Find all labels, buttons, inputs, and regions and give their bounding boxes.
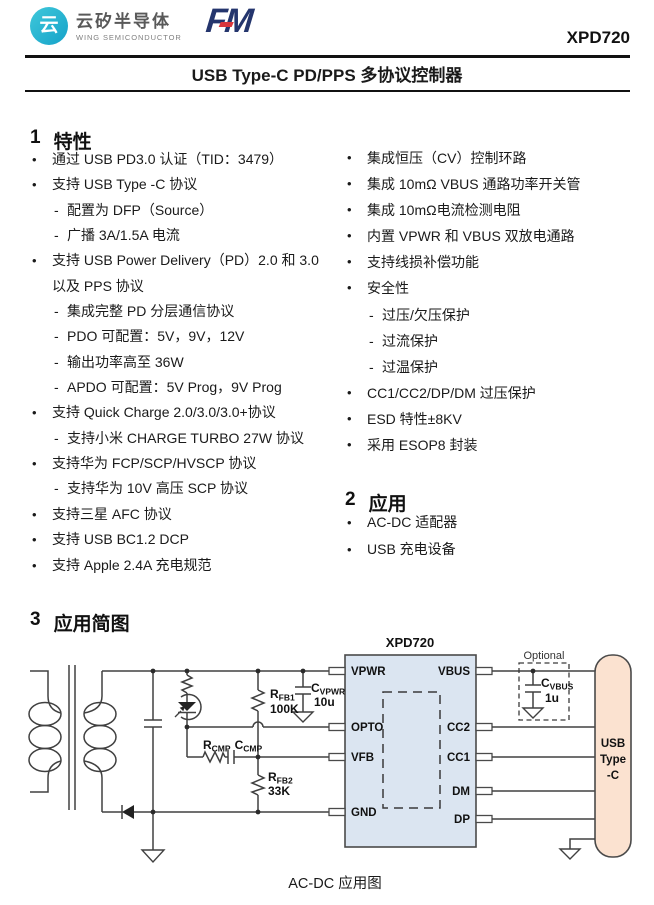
header-rule-top <box>25 55 630 58</box>
application-item: • AC-DC 适配器 <box>345 509 650 536</box>
bullet-marker: - <box>54 299 67 324</box>
pin-label-dp: DP <box>454 814 470 826</box>
feature-item: • 支持 Quick Charge 2.0/3.0/3.0+协议 <box>30 400 340 425</box>
features-left-list: • 通过 USB PD3.0 认证（TID：3479） • 支持 USB Typ… <box>30 147 340 578</box>
cvpwr-value: 10u <box>314 695 335 709</box>
pin-cc1 <box>476 754 492 761</box>
feature-text: 过流保护 <box>382 328 438 354</box>
rectifier-diode <box>122 805 134 819</box>
bullet-marker: • <box>347 380 367 406</box>
schematic-caption: AC-DC 应用图 <box>30 872 640 893</box>
usb-label-line2: Type <box>600 754 626 766</box>
feature-item: • 支持 USB Type -C 协议 <box>30 172 340 197</box>
bullet-marker: - <box>369 302 382 328</box>
feature-text: 集成恒压（CV）控制环路 <box>367 145 526 171</box>
feature-item: • 安全性 <box>345 275 650 301</box>
feature-text: 支持三星 AFC 协议 <box>52 502 172 527</box>
feature-item: - 配置为 DFP（Source） <box>30 198 340 223</box>
bullet-marker: • <box>32 451 52 476</box>
feature-item: - 过温保护 <box>345 354 650 380</box>
pin-gnd <box>329 809 345 816</box>
fm-logo: FM <box>204 2 253 42</box>
pin-vpwr <box>329 668 345 675</box>
ic-name: XPD720 <box>386 635 434 650</box>
feature-item: 以及 PPS 协议 <box>30 274 340 299</box>
output-capacitor <box>144 671 162 812</box>
bullet-marker: • <box>347 509 367 536</box>
brand-name-en: WING SEMICONDUCTOR <box>76 33 182 42</box>
feature-item: • 支持 Apple 2.4A 充电规范 <box>30 553 340 578</box>
pin-label-gnd: GND <box>351 807 377 819</box>
feature-item: - APDO 可配置：5V Prog，9V Prog <box>30 375 340 400</box>
bullet-marker: • <box>347 171 367 197</box>
bullet-marker: • <box>32 527 52 552</box>
bullet-marker: • <box>347 197 367 223</box>
feature-item: • 通过 USB PD3.0 认证（TID：3479） <box>30 147 340 172</box>
pin-vbus <box>476 668 492 675</box>
fm-logo-letter-m: M <box>223 2 253 40</box>
header: 云 云矽半导体 WING SEMICONDUCTOR FM XPD720 <box>0 0 654 55</box>
pin-label-vfb: VFB <box>351 752 374 764</box>
feature-text: 内置 VPWR 和 VBUS 双放电通路 <box>367 223 575 249</box>
feature-text: 支持 USB Type -C 协议 <box>52 172 197 197</box>
wing-logo-icon: 云 <box>30 7 68 45</box>
application-schematic: XPD720 VPWR OPTO VFB GND VBUS CC2 CC1 DM… <box>25 620 635 875</box>
fm-logo-red-dash-icon <box>219 22 234 27</box>
applications-list: • AC-DC 适配器 • USB 充电设备 <box>345 509 650 563</box>
bullet-marker: - <box>54 426 67 451</box>
bullet-marker: • <box>347 275 367 301</box>
optocoupler <box>175 671 201 727</box>
bullet-marker: - <box>54 324 67 349</box>
bullet-marker: • <box>347 432 367 458</box>
feature-item: - PDO 可配置：5V，9V，12V <box>30 324 340 349</box>
bullet-marker: • <box>347 223 367 249</box>
rfb1-label: RFB1 <box>270 687 295 703</box>
pin-cc2 <box>476 724 492 731</box>
feature-item: - 输出功率高至 36W <box>30 350 340 375</box>
application-item: • USB 充电设备 <box>345 536 650 563</box>
feature-text: 支持 Apple 2.4A 充电规范 <box>52 553 212 578</box>
feature-item: • 支持 USB BC1.2 DCP <box>30 527 340 552</box>
optional-label: Optional <box>524 650 565 662</box>
ic-xpd720: XPD720 VPWR OPTO VFB GND VBUS CC2 CC1 DM… <box>329 635 492 847</box>
pin-label-vbus: VBUS <box>438 666 470 678</box>
feature-item: - 集成完整 PD 分层通信协议 <box>30 299 340 324</box>
header-rule-bottom <box>25 90 630 92</box>
feature-text: 集成 10mΩ VBUS 通路功率开关管 <box>367 171 581 197</box>
pin-dp <box>476 816 492 823</box>
feature-text: 支持线损补偿功能 <box>367 249 479 275</box>
bullet-marker: • <box>32 553 52 578</box>
bullet-marker: • <box>32 400 52 425</box>
feature-item: • ESD 特性±8KV <box>345 406 650 432</box>
feature-text: 支持 USB Power Delivery（PD）2.0 和 3.0 <box>52 248 319 273</box>
feature-text: 支持华为 10V 高压 SCP 协议 <box>67 476 248 501</box>
wing-logo-glyph: 云 <box>39 15 58 36</box>
feature-text: 支持小米 CHARGE TURBO 27W 协议 <box>67 426 304 451</box>
cvbus-value: 1u <box>545 691 559 705</box>
feature-text: 通过 USB PD3.0 认证（TID：3479） <box>52 147 283 172</box>
feature-text: CC1/CC2/DP/DM 过压保护 <box>367 380 536 406</box>
feature-text: 输出功率高至 36W <box>67 350 184 375</box>
feature-text: 支持 Quick Charge 2.0/3.0/3.0+协议 <box>52 400 276 425</box>
feature-item: • 支持三星 AFC 协议 <box>30 502 340 527</box>
part-number: XPD720 <box>567 28 630 48</box>
connector-wires <box>492 671 595 819</box>
transformer <box>29 665 116 812</box>
feature-text: 支持 USB BC1.2 DCP <box>52 527 189 552</box>
features-right-list: • 集成恒压（CV）控制环路 • 集成 10mΩ VBUS 通路功率开关管 • … <box>345 145 650 458</box>
pin-label-opto: OPTO <box>351 722 383 734</box>
feature-item: • 支持华为 FCP/SCP/HVSCP 协议 <box>30 451 340 476</box>
bullet-marker: - <box>54 223 67 248</box>
feature-item: • 支持线损补偿功能 <box>345 249 650 275</box>
feature-item: - 过压/欠压保护 <box>345 302 650 328</box>
bullet-marker: - <box>54 350 67 375</box>
feature-item: - 广播 3A/1.5A 电流 <box>30 223 340 248</box>
feature-text: ESD 特性±8KV <box>367 406 462 432</box>
feature-text: 采用 ESOP8 封装 <box>367 432 477 458</box>
application-text: USB 充电设备 <box>367 536 456 563</box>
feature-item: • 集成恒压（CV）控制环路 <box>345 145 650 171</box>
rfb2-resistor <box>252 757 264 812</box>
feature-item: - 过流保护 <box>345 328 650 354</box>
transformer-core <box>69 665 75 810</box>
pin-label-vpwr: VPWR <box>351 666 386 678</box>
rfb1-value: 100K <box>270 702 299 716</box>
feature-text: PDO 可配置：5V，9V，12V <box>67 324 244 349</box>
wing-semiconductor-logo: 云 云矽半导体 WING SEMICONDUCTOR <box>30 7 182 45</box>
feature-item: • 内置 VPWR 和 VBUS 双放电通路 <box>345 223 650 249</box>
pin-label-cc1: CC1 <box>447 752 471 764</box>
bullet-marker: • <box>347 249 367 275</box>
feature-item: • 采用 ESOP8 封装 <box>345 432 650 458</box>
feature-item: - 支持华为 10V 高压 SCP 协议 <box>30 476 340 501</box>
feature-text: 配置为 DFP（Source） <box>67 198 213 223</box>
bullet-marker: • <box>32 147 52 172</box>
pin-label-dm: DM <box>452 786 470 798</box>
rfb2-value: 33K <box>268 784 290 798</box>
bullet-marker: • <box>32 248 52 273</box>
feature-text: 集成完整 PD 分层通信协议 <box>67 299 234 324</box>
feature-text: 广播 3A/1.5A 电流 <box>67 223 180 248</box>
feature-item: • 集成 10mΩ电流检测电阻 <box>345 197 650 223</box>
usb-label-line3: -C <box>607 770 619 782</box>
bullet-marker: - <box>54 198 67 223</box>
application-text: AC-DC 适配器 <box>367 509 457 536</box>
usb-label-line1: USB <box>601 738 625 750</box>
bullet-marker: • <box>32 502 52 527</box>
rcmp-ccmp-label: RCMPCCMP <box>203 738 262 754</box>
bullet-marker: • <box>347 536 367 563</box>
brand-block: 云矽半导体 WING SEMICONDUCTOR <box>76 7 182 42</box>
feature-item: • CC1/CC2/DP/DM 过压保护 <box>345 380 650 406</box>
feature-text: 安全性 <box>367 275 409 301</box>
brand-name-cn: 云矽半导体 <box>76 12 182 31</box>
feature-text: APDO 可配置：5V Prog，9V Prog <box>67 375 282 400</box>
feature-text: 集成 10mΩ电流检测电阻 <box>367 197 521 223</box>
feature-text: 支持华为 FCP/SCP/HVSCP 协议 <box>52 451 256 476</box>
pin-dm <box>476 788 492 795</box>
pin-label-cc2: CC2 <box>447 722 470 734</box>
bullet-marker: - <box>369 354 382 380</box>
bullet-marker: • <box>347 406 367 432</box>
cvbus-label: CVBUS <box>541 676 574 692</box>
doc-title: USB Type-C PD/PPS 多协议控制器 <box>0 61 654 86</box>
feature-text: 以及 PPS 协议 <box>52 274 144 299</box>
feature-item: - 支持小米 CHARGE TURBO 27W 协议 <box>30 426 340 451</box>
bullet-marker: - <box>54 375 67 400</box>
bullet-marker: - <box>369 328 382 354</box>
feature-text: 过温保护 <box>382 354 438 380</box>
pin-vfb <box>329 754 345 761</box>
feature-item: • 支持 USB Power Delivery（PD）2.0 和 3.0 <box>30 248 340 273</box>
bullet-marker: • <box>32 172 52 197</box>
feature-item: • 集成 10mΩ VBUS 通路功率开关管 <box>345 171 650 197</box>
feature-text: 过压/欠压保护 <box>382 302 470 328</box>
pin-opto <box>329 724 345 731</box>
ground-symbol <box>142 812 164 862</box>
datasheet-page: 云 云矽半导体 WING SEMICONDUCTOR FM XPD720 USB… <box>0 0 654 905</box>
optional-cvbus: Optional CVBUS 1u <box>519 650 574 720</box>
connector-ground-icon <box>560 849 580 859</box>
bullet-marker: - <box>54 476 67 501</box>
bullet-marker: • <box>347 145 367 171</box>
